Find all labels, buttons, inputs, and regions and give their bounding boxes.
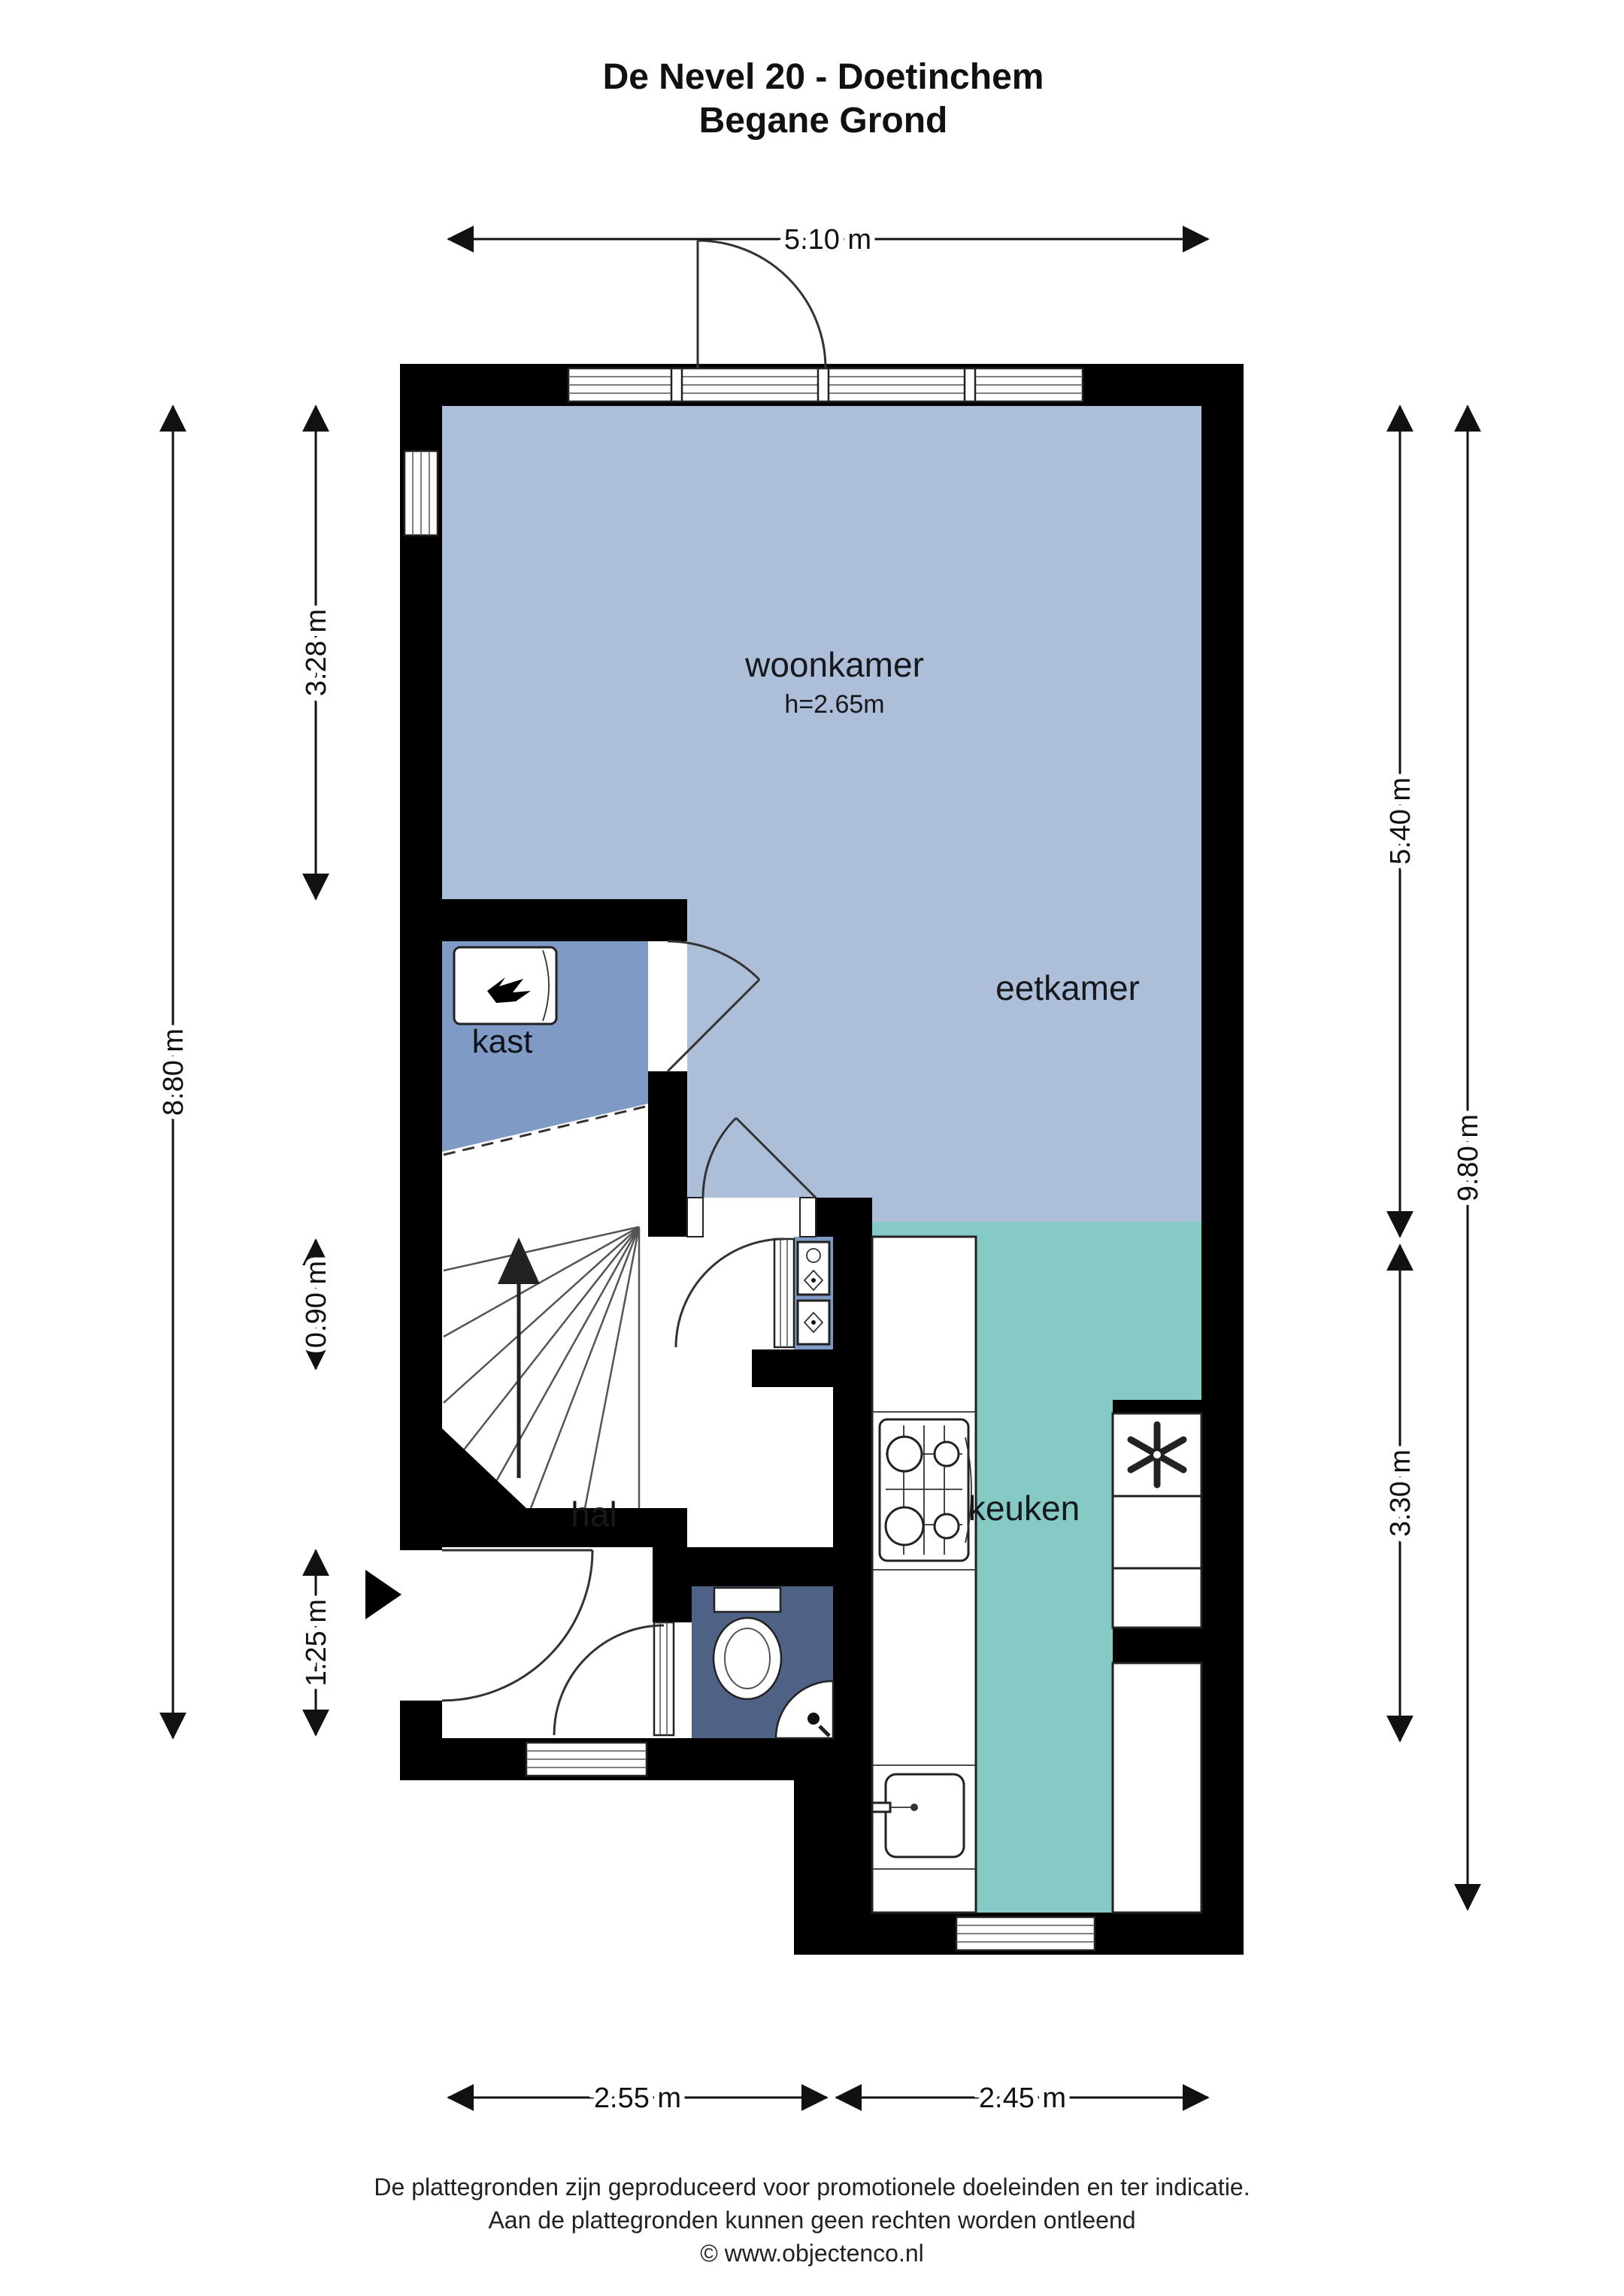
- meter-cupboard-door: [676, 1239, 794, 1347]
- floorplan-page: De Nevel 20 - Doetinchem Begane Grond: [0, 0, 1624, 2296]
- dimension-left-total: 8.80 m: [158, 406, 189, 1738]
- svg-text:2.45 m: 2.45 m: [979, 2082, 1066, 2114]
- dimension-right-lower: 3.30 m: [1385, 1245, 1416, 1741]
- dimension-left-mid: 0.90 m: [301, 1240, 332, 1369]
- page-title: De Nevel 20 - Doetinchem: [603, 57, 1044, 97]
- footer-copyright: © www.objectenco.nl: [700, 2240, 924, 2267]
- gas-stove-icon: [880, 1419, 971, 1561]
- svg-text:9.80 m: 9.80 m: [1453, 1114, 1484, 1201]
- page-subtitle: Begane Grond: [699, 101, 948, 141]
- meter-cupboard-icons: [798, 1242, 829, 1344]
- room-label-eetkamer: eetkamer: [995, 968, 1140, 1007]
- dimension-right-total: 9.80 m: [1453, 406, 1484, 1910]
- entrance-arrow-icon: [365, 1570, 401, 1619]
- room-label-hal: hal: [571, 1495, 617, 1534]
- room-label-kast: kast: [472, 1023, 533, 1060]
- window-kitchen-bottom: [956, 1917, 1095, 1950]
- svg-text:5.40 m: 5.40 m: [1385, 777, 1416, 865]
- footer-disclaimer-1: De plattegronden zijn geproduceerd voor …: [374, 2173, 1250, 2201]
- kitchen-counter-left: [872, 1237, 976, 1913]
- stairs-up-arrow-icon: [498, 1237, 540, 1478]
- dimension-top-width: 5.10 m: [448, 224, 1208, 256]
- boiler: [454, 947, 556, 1024]
- dimension-left-lower: 1.25 m: [301, 1550, 332, 1735]
- kitchen-counter-right: [1113, 1413, 1201, 1913]
- svg-text:3.30 m: 3.30 m: [1385, 1449, 1416, 1537]
- toilet-door-swing: [554, 1622, 674, 1735]
- window-hall-bottom: [526, 1743, 647, 1776]
- dimension-right-upper: 5.40 m: [1385, 406, 1416, 1237]
- garden-door-swing: [698, 241, 826, 368]
- dimension-bottom-left: 2.55 m: [448, 2082, 827, 2114]
- svg-text:0.90 m: 0.90 m: [301, 1261, 332, 1348]
- svg-text:3.28 m: 3.28 m: [301, 609, 332, 696]
- svg-text:2.55 m: 2.55 m: [594, 2082, 681, 2114]
- window-top-living: [568, 368, 1083, 401]
- dimension-bottom-right: 2.45 m: [836, 2082, 1208, 2114]
- floorplan-drawing: De Nevel 20 - Doetinchem Begane Grond: [0, 0, 1624, 2296]
- room-height-note: h=2.65m: [784, 690, 884, 719]
- svg-text:8.80 m: 8.80 m: [158, 1028, 189, 1116]
- window-left-living: [404, 451, 438, 535]
- toilet-icon: [714, 1588, 781, 1699]
- footer-disclaimer-2: Aan de plattegronden kunnen geen rechten…: [488, 2207, 1135, 2234]
- room-label-woonkamer: woonkamer: [744, 645, 924, 684]
- staircase: [444, 1107, 645, 1508]
- room-label-keuken: keuken: [968, 1489, 1080, 1528]
- svg-text:5.10 m: 5.10 m: [784, 224, 871, 256]
- svg-text:1.25 m: 1.25 m: [301, 1599, 332, 1686]
- dimension-left-upper: 3.28 m: [301, 406, 332, 899]
- kitchen-sink-icon: [872, 1774, 964, 1857]
